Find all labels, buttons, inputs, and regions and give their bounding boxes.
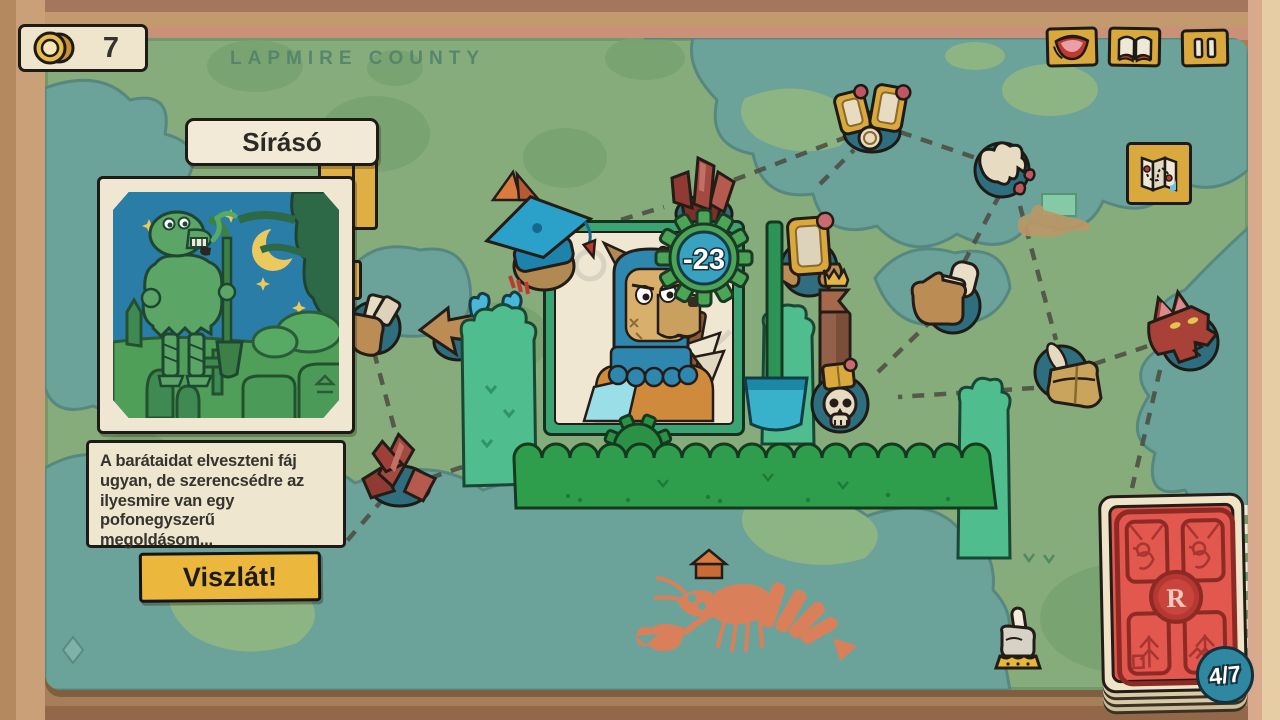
graduation-cap: [480, 186, 602, 298]
pause-button[interactable]: [1181, 29, 1230, 68]
reaching-hands-icon: [905, 260, 997, 344]
glove-pointer-icon: [992, 606, 1042, 670]
collection-button[interactable]: [1045, 26, 1098, 67]
node-crystals-west[interactable]: [350, 428, 450, 518]
ink-spill-icon: [968, 134, 1040, 212]
game-screen: LAPMIRE COUNTY: [0, 0, 1280, 720]
crowned-skull-icon: [800, 358, 880, 442]
node-ink-spill[interactable]: [968, 134, 1040, 212]
node-twin-mirrors[interactable]: [828, 84, 912, 156]
event-action-label: Viszlát!: [183, 561, 277, 593]
folded-map-icon: [1136, 152, 1182, 196]
dragon-head-icon: [1136, 292, 1232, 380]
node-reaching-hands[interactable]: [905, 260, 997, 344]
pause-icon: [1192, 37, 1218, 59]
twin-mirrors-icon: [828, 84, 912, 156]
journal-button[interactable]: [1108, 27, 1162, 68]
gear-badge-icon: -23: [656, 210, 752, 306]
crawfish-decoration: [628, 562, 858, 666]
coin-counter: 7: [18, 24, 148, 72]
node-dragon-head[interactable]: [1136, 292, 1232, 380]
event-title-banner: Sírásó: [185, 118, 379, 166]
cursor-glove: [992, 606, 1042, 670]
gravedigger-illustration: [113, 192, 345, 424]
event-illustration-card: [97, 176, 355, 434]
diamond-decoration: [62, 636, 84, 664]
open-book-icon: [1114, 32, 1155, 63]
scroll-fold: [352, 158, 378, 230]
node-crowned-skull[interactable]: [800, 358, 880, 442]
grass-marks: [1022, 552, 1058, 564]
deck-emblem: R: [1166, 583, 1187, 613]
event-description: A barátaidat elveszteni fáj ugyan, de sz…: [100, 452, 304, 549]
modifier-value: -23: [683, 244, 725, 276]
event-illustration: [113, 192, 339, 418]
deck-count: 4/7: [1208, 660, 1243, 690]
crystals-icon: [350, 428, 450, 518]
coin-value: 7: [89, 32, 133, 65]
event-description-box: A barátaidat elveszteni fáj ugyan, de sz…: [86, 440, 346, 548]
hedge: [508, 412, 1008, 512]
node-satchel[interactable]: [1025, 340, 1109, 416]
encounter-modifier-badge: -23: [656, 210, 752, 306]
mouth-icon: [1052, 31, 1093, 62]
event-action-button[interactable]: Viszlát!: [139, 551, 321, 603]
region-title: LAPMIRE COUNTY: [230, 48, 485, 70]
satchel-feather-icon: [1025, 340, 1109, 416]
coin-icon: [33, 29, 75, 67]
map-button[interactable]: [1126, 142, 1192, 205]
crawfish-icon: [628, 562, 858, 666]
event-title: Sírásó: [242, 127, 322, 158]
